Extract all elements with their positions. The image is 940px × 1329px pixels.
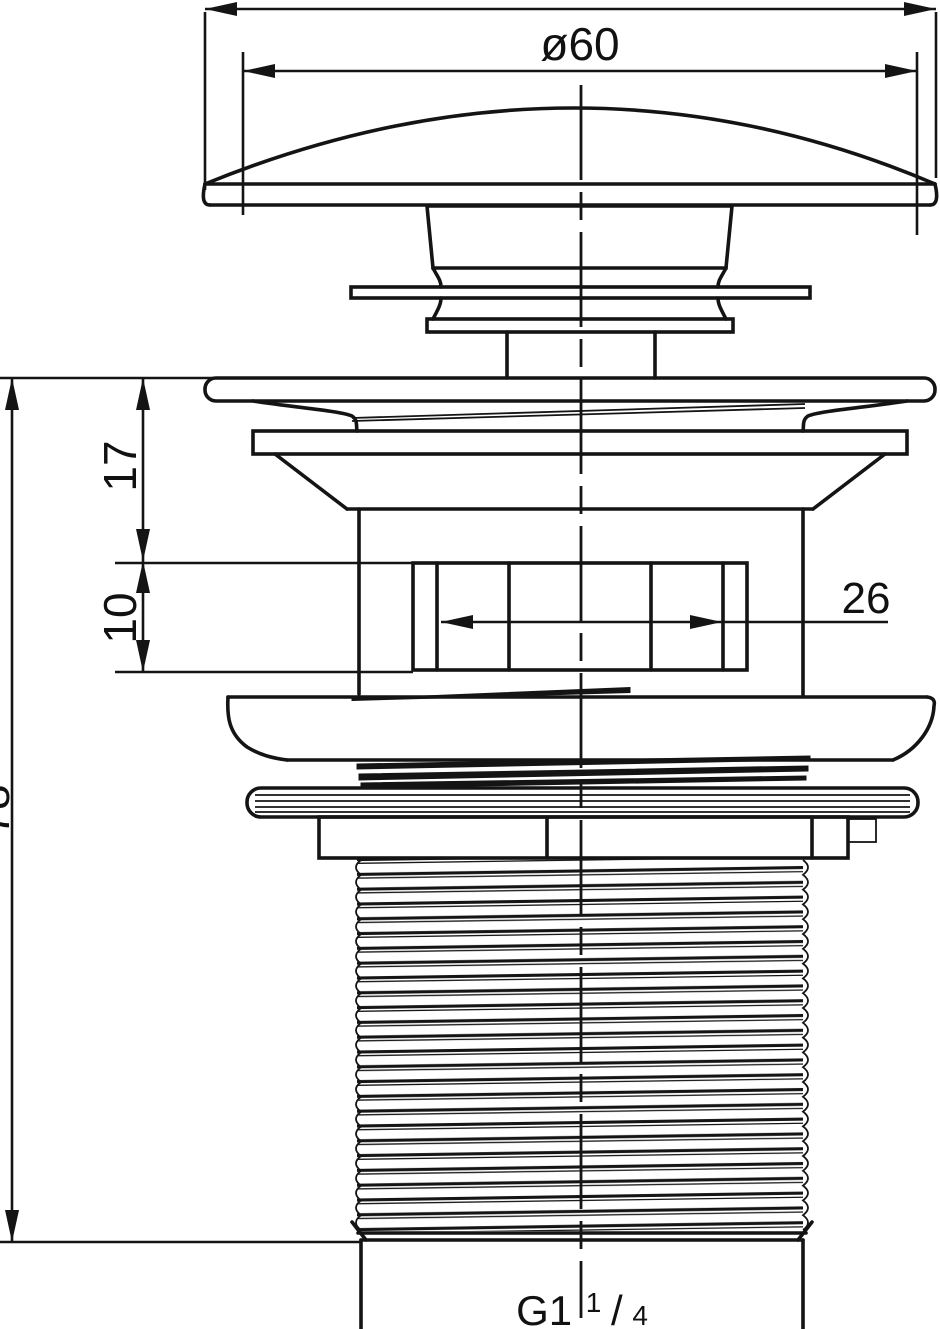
dim-slot-section-height: 10 [94, 561, 413, 672]
dim-overall-height: 78 [0, 378, 361, 1242]
backnut [319, 817, 876, 858]
dim-slot-width-label: 26 [842, 574, 891, 623]
thread-size-slash: / [611, 1287, 623, 1329]
thread-size-prefix: G1 [516, 1287, 572, 1329]
dim-cap-diameter-label: ø60 [540, 18, 619, 70]
dim-slot-section-height-label: 10 [94, 592, 146, 643]
basin-waste-drawing: ø60 17 10 78 26 G1 [0, 0, 940, 1329]
dim-overall-height-label: 78 [0, 784, 19, 835]
threaded-shank [352, 859, 812, 1240]
technical-drawing-sheet: ø60 17 10 78 26 G1 [0, 0, 940, 1329]
dim-flange-height: 17 [94, 378, 150, 561]
cap-dome [203, 108, 936, 205]
thread-size-numerator: 1 [586, 1287, 602, 1318]
waste-body [352, 509, 803, 701]
seal-washer [247, 788, 918, 817]
flange-assembly [205, 378, 935, 509]
thread-size-denominator: 4 [632, 1300, 648, 1329]
dim-flange-height-label: 17 [94, 440, 146, 491]
